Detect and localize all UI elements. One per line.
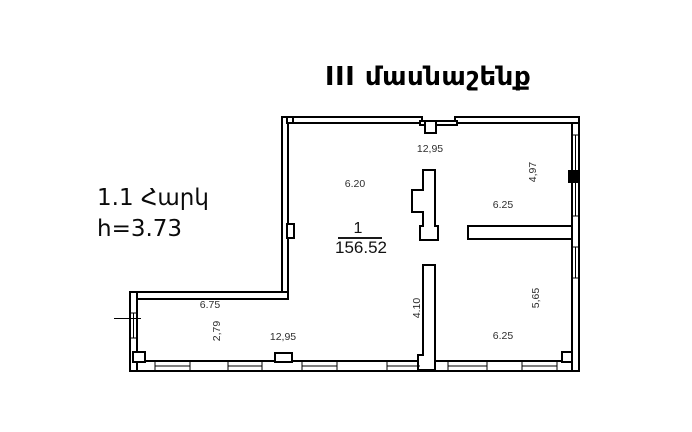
wall-stub-left <box>287 224 294 238</box>
dim-partition-length: 4.10 <box>411 298 423 318</box>
dim-strip-depth: 2,79 <box>211 321 223 341</box>
wall-left-upper <box>282 117 288 295</box>
dim-room-upper-right-depth: 4,97 <box>527 162 539 182</box>
room-number: 1 <box>354 220 363 238</box>
pier-central <box>412 170 438 240</box>
dim-top-width: 12,95 <box>417 143 443 155</box>
pier-right-wall <box>569 171 579 182</box>
dim-bottom-width: 12,95 <box>270 331 296 343</box>
corner-notch-top-left <box>287 117 293 123</box>
dim-room-upper-right-width: 6.25 <box>493 199 513 211</box>
corner-column-bottom-right <box>562 352 572 362</box>
corner-column-bottom-left <box>133 352 145 362</box>
wall-bottom <box>130 361 579 371</box>
dim-strip-segment-width: 6.75 <box>200 299 220 311</box>
wall-top-right-segment <box>455 117 579 123</box>
wall-divider-right-rooms <box>468 226 572 239</box>
wall-top-left-segment <box>282 117 422 123</box>
dim-room-lower-right-depth: 5,65 <box>530 288 542 308</box>
pilaster-bottom-wall <box>275 353 292 362</box>
dim-hall-width: 6.20 <box>345 178 365 190</box>
dim-room-lower-right-width: 6.25 <box>493 330 513 342</box>
room-area: 156.52 <box>335 238 387 258</box>
wall-step <box>130 292 288 299</box>
floor-plan-drawing <box>0 0 692 432</box>
wall-top-duct-notch <box>425 121 436 133</box>
floor-plan-page: { "title": "III մասնաշենք", "floor_info"… <box>0 0 692 432</box>
